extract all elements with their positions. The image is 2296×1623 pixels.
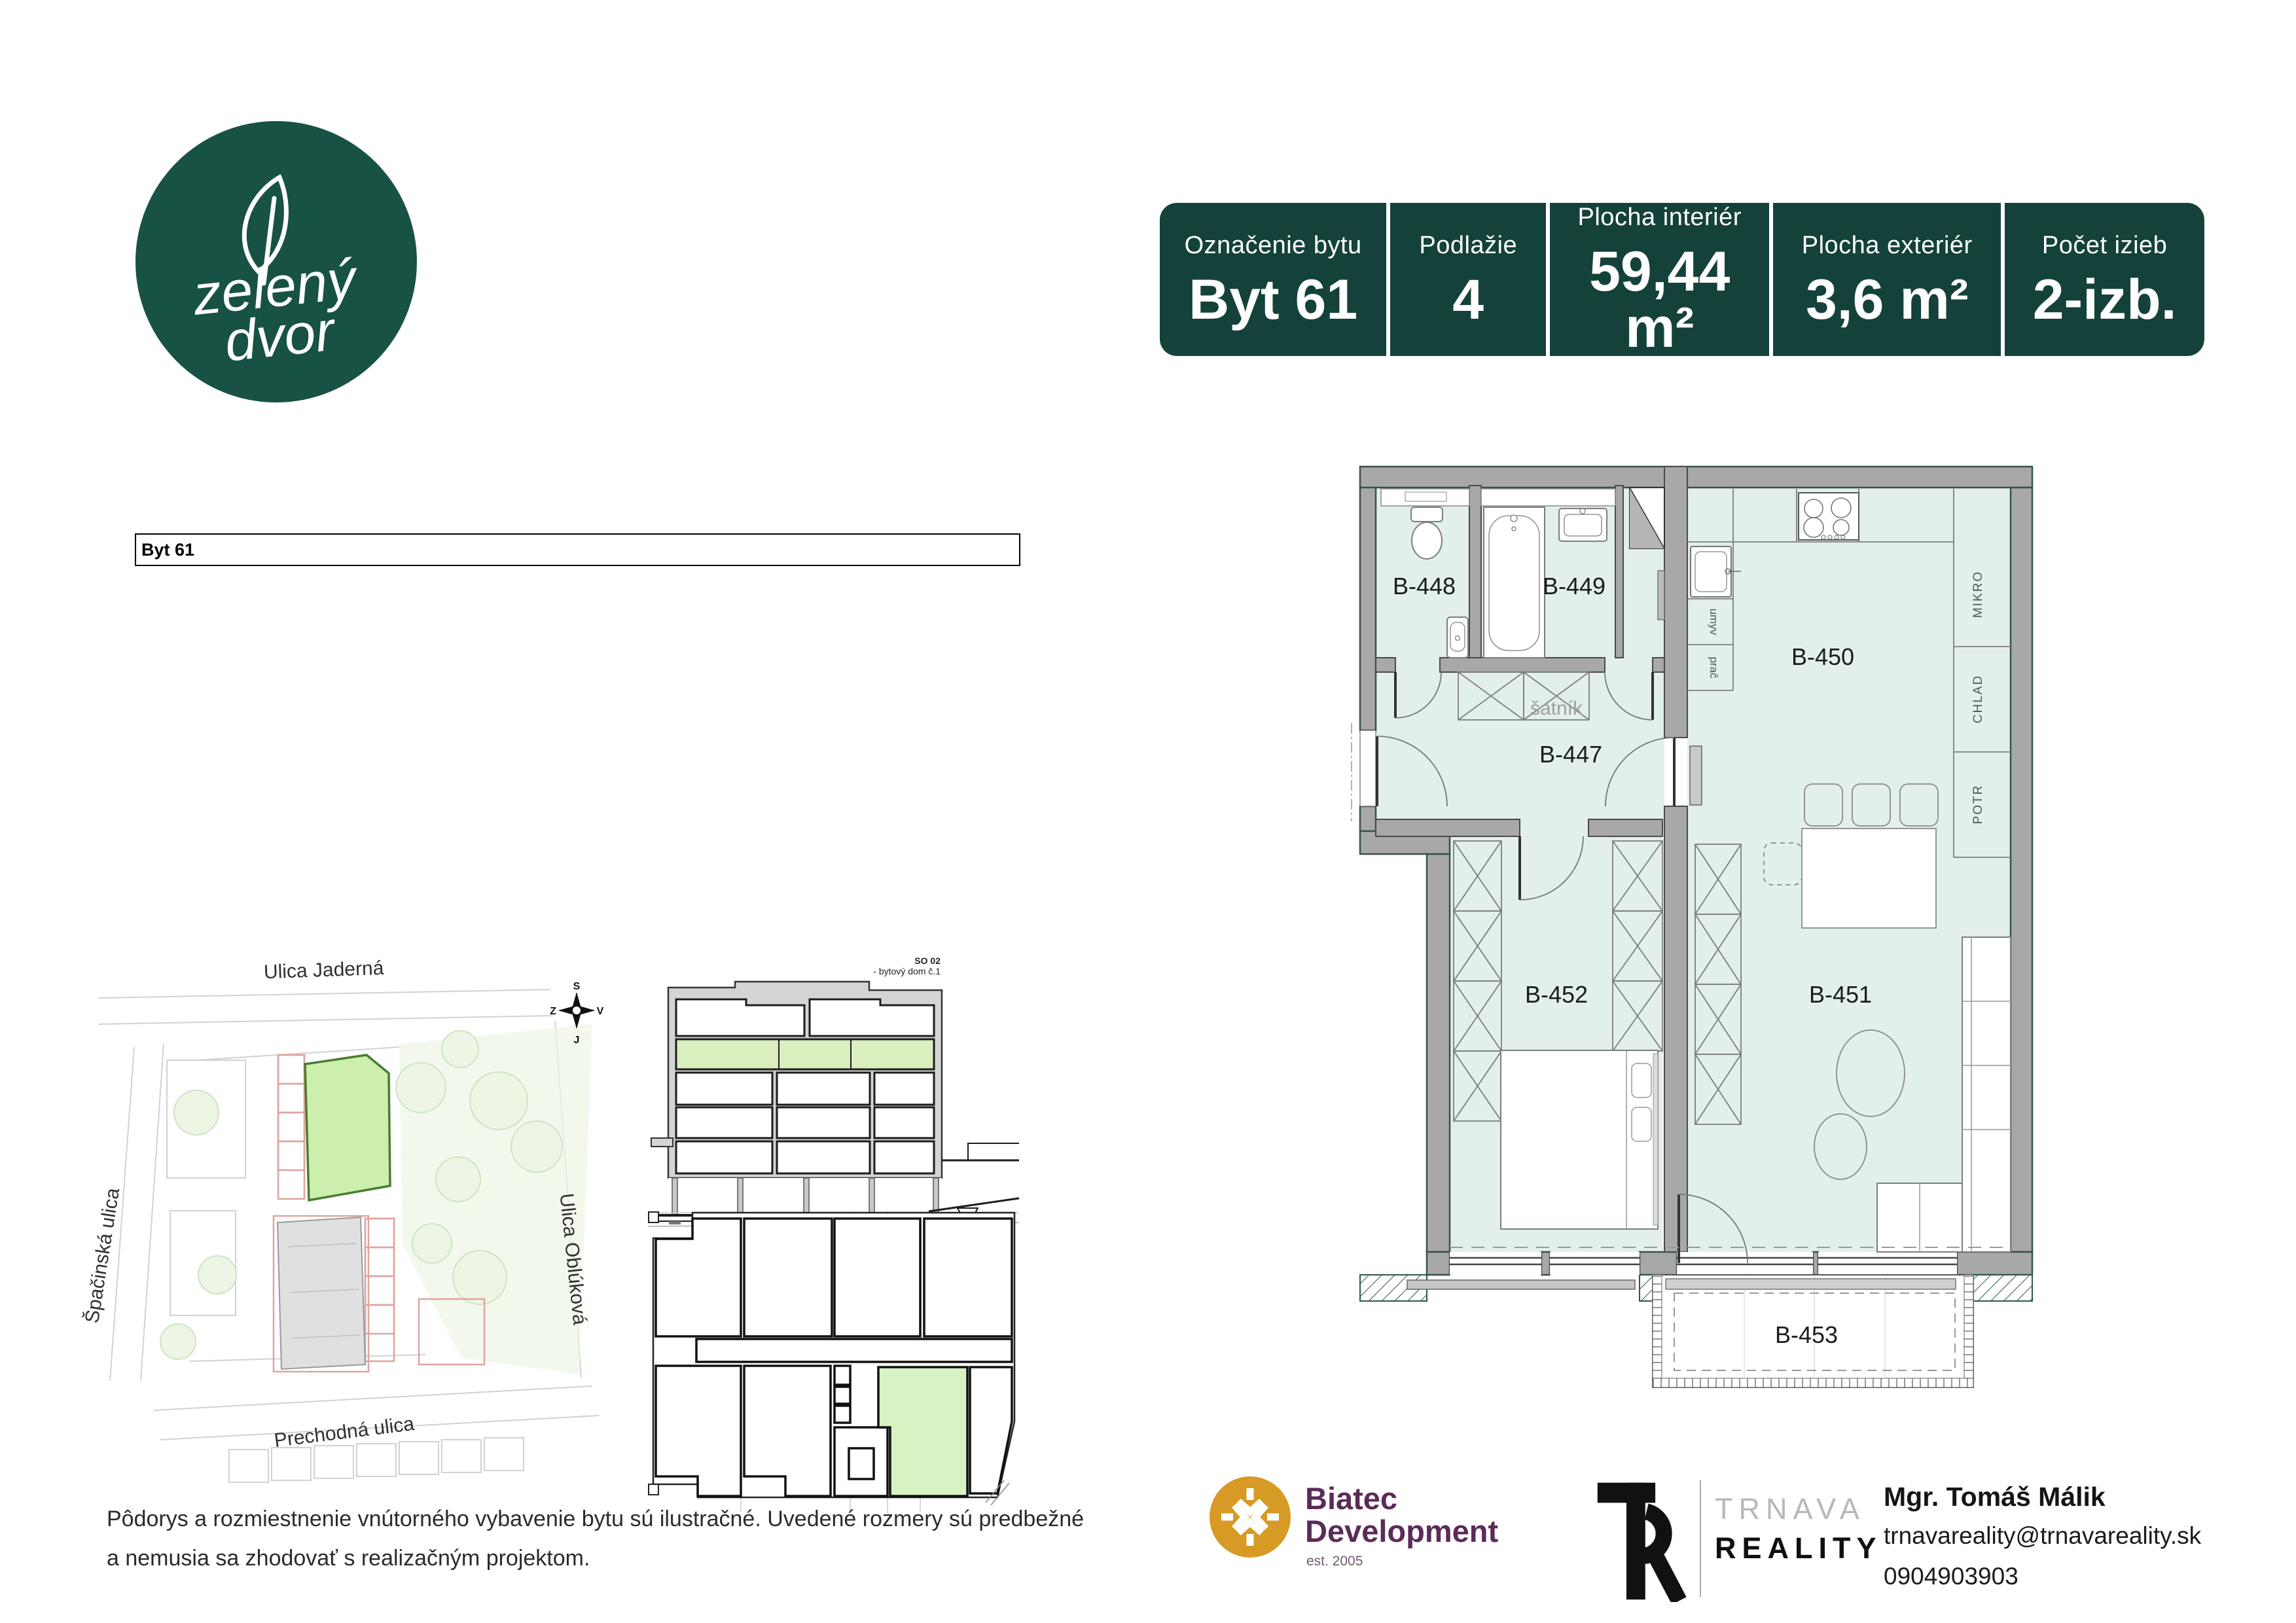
table-title: Byt 61: [135, 534, 1020, 565]
unit-spec-header: Označenie bytu Byt 61 Podlažie 4 Plocha …: [1160, 203, 2204, 356]
room-label-b447: B-447: [1539, 741, 1602, 768]
trnava-wordmark-bottom: REALITY: [1715, 1531, 1882, 1565]
spec-value: Byt 61: [1160, 272, 1386, 328]
spec-label: Plocha exteriér: [1773, 232, 2001, 260]
towel-radiator-icon: [1658, 571, 1664, 620]
room-label-b449: B-449: [1543, 573, 1605, 599]
disclaimer-text: Pôdorys a rozmiestnenie vnútorného vybav…: [107, 1500, 1128, 1578]
disclaimer-line2: a nemusia sa zhodovať s realizačným proj…: [107, 1539, 1128, 1578]
building-section: SO 02 - bytový dom č.1: [645, 952, 1037, 1234]
spec-label: Počet izieb: [2005, 232, 2204, 260]
floor-key-plan: [641, 1207, 1034, 1515]
compass-s: J: [574, 1035, 580, 1046]
key-highlighted-unit: [878, 1367, 967, 1496]
label-washer: prač: [1708, 656, 1720, 679]
spec-cell-floor: Podlažie 4: [1390, 203, 1546, 356]
room-label-b448: B-448: [1393, 573, 1456, 599]
biatec-name-line1: Biatec: [1305, 1480, 1397, 1516]
biatec-est: est. 2005: [1306, 1554, 1363, 1569]
table-title-row: Byt 61: [135, 534, 1020, 565]
trnava-wordmark-top: TRNAVA: [1715, 1492, 1865, 1526]
spec-label: Označenie bytu: [1160, 232, 1386, 260]
street-label-top: Ulica Jaderná: [263, 957, 384, 983]
biatec-name-line2: Development: [1305, 1513, 1498, 1549]
agent-name: Mgr. Tomáš Málik: [1884, 1482, 2106, 1512]
room-label-b450: B-450: [1791, 643, 1854, 670]
spec-value: 59,44 m²: [1550, 243, 1769, 356]
label-pantry: POTR: [1971, 785, 1985, 825]
brochure-page: { "colors": { "brand_green": "#14423a", …: [0, 0, 2296, 1623]
disclaimer-line1: Pôdorys a rozmiestnenie vnútorného vybav…: [107, 1500, 1128, 1539]
site-existing-building: [278, 1217, 365, 1369]
agent-phone: 0904903903: [1884, 1563, 2018, 1590]
logo-divider: [1700, 1480, 1701, 1597]
logo-line2: dvor: [222, 299, 340, 373]
site-map: Ulica Jaderná Špačinská ulica Ulica Oblú…: [52, 942, 655, 1505]
room-label-b451: B-451: [1809, 981, 1872, 1008]
spec-value: 4: [1390, 272, 1546, 328]
spec-cell-unit: Označenie bytu Byt 61: [1160, 203, 1386, 356]
spec-cell-exterior-area: Plocha exteriér 3,6 m²: [1773, 203, 2001, 356]
label-dishwasher: umyv: [1708, 609, 1720, 635]
street-label-left: Špačinská ulica: [81, 1186, 124, 1325]
stove-icon: [1799, 493, 1859, 540]
section-floors: [676, 999, 934, 1173]
spec-value: 2-izb.: [2005, 272, 2204, 328]
bed-icon: [1501, 1050, 1658, 1229]
spec-label: Podlažie: [1390, 232, 1546, 260]
compass-w: Z: [550, 1006, 556, 1017]
label-fridge: CHLAD: [1971, 675, 1985, 723]
toilet-bowl-icon: [1412, 522, 1442, 559]
section-title-1: SO 02: [914, 955, 941, 966]
biatec-logo-icon: [1208, 1474, 1293, 1560]
room-label-b452: B-452: [1525, 981, 1588, 1008]
label-microwave: MIKRO: [1971, 571, 1985, 618]
compass-e: V: [597, 1006, 604, 1017]
french-window-railing: [1407, 1280, 1635, 1289]
spec-value: 3,6 m²: [1773, 272, 2001, 328]
section-title-2: - bytový dom č.1: [873, 966, 941, 976]
trnava-reality-logo-icon: [1596, 1476, 1687, 1602]
label-satnik: šatník: [1530, 698, 1583, 719]
apartment-floor-plan: umyv prač MIKRO CHLAD POTR: [1329, 458, 2055, 1400]
spec-cell-interior-area: Plocha interiér 59,44 m²: [1550, 203, 1769, 356]
agent-email: trnavareality@trnavareality.sk: [1884, 1522, 2201, 1550]
shaft: [1630, 488, 1664, 548]
room-spec-table: Byt 61: [135, 533, 1020, 566]
toilet-icon: [1411, 507, 1443, 522]
section-highlighted-floor: [676, 1039, 934, 1069]
compass-n: S: [573, 981, 581, 992]
spec-cell-rooms: Počet izieb 2-izb.: [2005, 203, 2204, 356]
loggia-radiator: [1666, 1279, 1956, 1289]
site-highlighted-building: [305, 1055, 390, 1200]
room-label-b453: B-453: [1775, 1321, 1838, 1348]
spec-label: Plocha interiér: [1550, 204, 1769, 232]
hall-radiator-icon: [1690, 746, 1702, 805]
project-logo: zelený dvor: [134, 120, 418, 404]
